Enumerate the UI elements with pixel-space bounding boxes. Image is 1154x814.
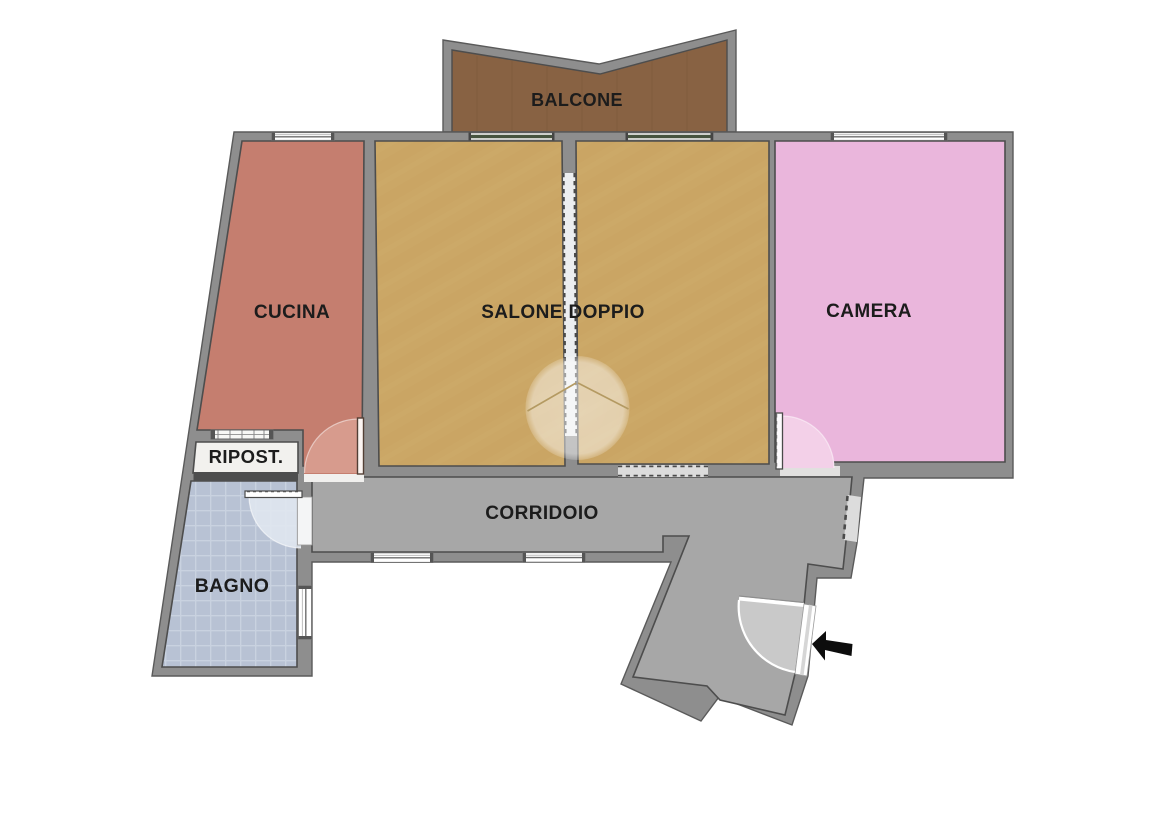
- svg-text:CORRIDOIO: CORRIDOIO: [485, 503, 598, 524]
- svg-text:BAGNO: BAGNO: [195, 575, 270, 597]
- svg-text:SALONE DOPPIO: SALONE DOPPIO: [481, 302, 645, 323]
- svg-text:RIPOST.: RIPOST.: [209, 446, 284, 467]
- svg-text:CUCINA: CUCINA: [254, 302, 330, 323]
- svg-text:BALCONE: BALCONE: [531, 90, 623, 110]
- svg-text:CAMERA: CAMERA: [826, 301, 912, 322]
